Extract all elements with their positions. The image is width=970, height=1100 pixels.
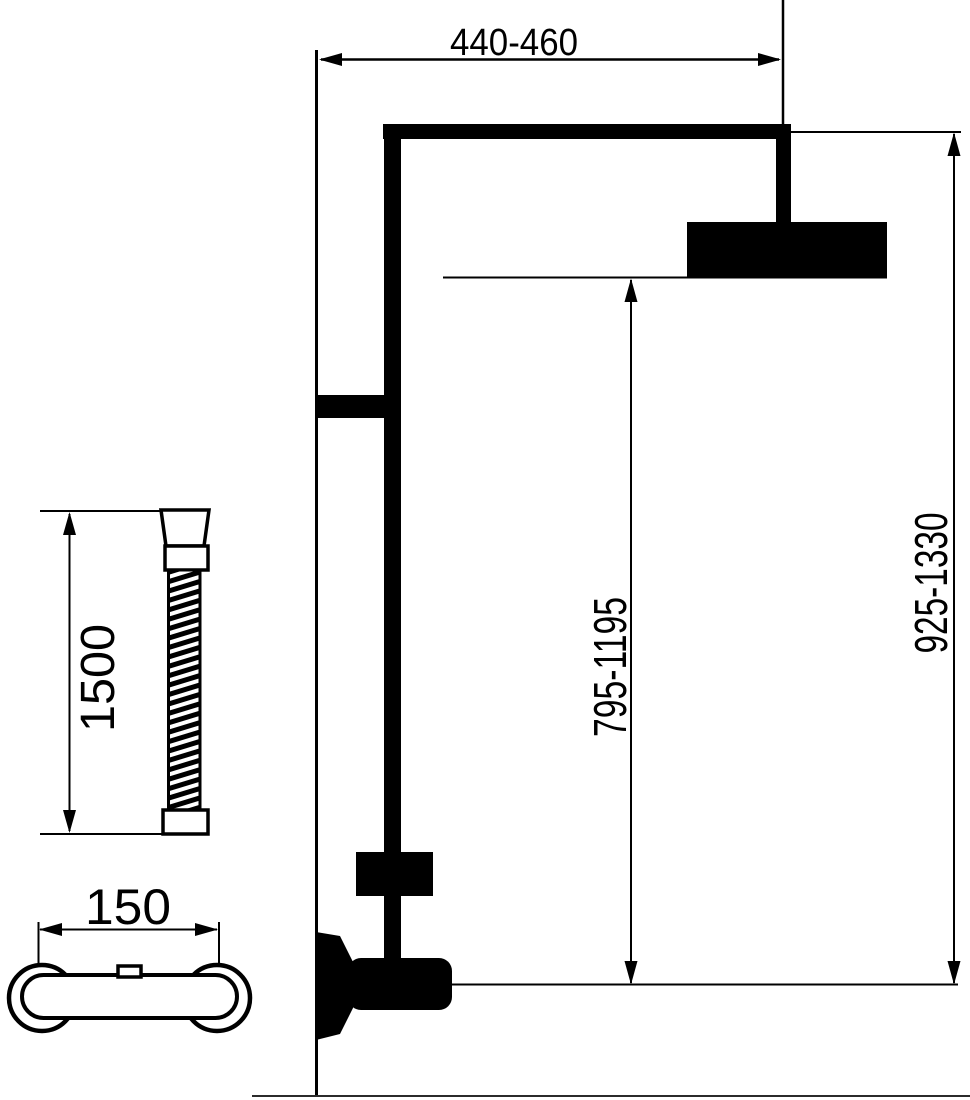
- top-arm-pipe: [383, 124, 791, 139]
- mixer-wall-flange: [316, 932, 353, 1040]
- arrowhead-down-icon: [948, 961, 961, 985]
- arrowhead-down-icon: [625, 961, 638, 985]
- arrowhead-up-icon: [948, 133, 961, 157]
- arrowhead-left-icon: [319, 53, 342, 66]
- mixer-body-side: [348, 958, 452, 1010]
- arrowhead-up-icon: [625, 279, 638, 303]
- arrowhead-right-icon: [758, 53, 781, 66]
- dimension-mid-height: 795-1195: [584, 279, 638, 985]
- mixer-front-view: 150: [9, 879, 250, 1031]
- hose-bottom-nut: [163, 810, 208, 834]
- mixer-body-front: [22, 975, 237, 1018]
- arrowhead-up-icon: [63, 512, 76, 535]
- dimension-mixer-width: 150: [39, 879, 220, 970]
- shower-hose-view: 1500: [40, 510, 209, 834]
- hose-top-nut: [165, 546, 208, 570]
- riser-pipe: [384, 124, 401, 962]
- dimension-hose-length: 1500: [40, 511, 162, 834]
- head-drop-pipe: [776, 139, 791, 223]
- upper-wall-bracket: [316, 395, 401, 418]
- arrowhead-left-icon: [39, 923, 62, 936]
- arrowhead-right-icon: [195, 923, 218, 936]
- dimension-label-hose-length: 1500: [72, 624, 125, 732]
- slider-block: [356, 852, 433, 896]
- dimension-label-mixer-width: 150: [85, 879, 171, 935]
- dimension-label-right-height: 925-1330: [905, 513, 957, 654]
- main-elevation-view: 440-460 795-1195: [252, 0, 970, 1096]
- overhead-shower-head: [687, 222, 887, 278]
- mixer-diverter-tab: [118, 966, 141, 977]
- dimension-label-mid-height: 795-1195: [584, 597, 636, 737]
- hose-corrugated-tube: [169, 570, 201, 810]
- arrowhead-down-icon: [63, 810, 76, 833]
- technical-drawing-page: 440-460 795-1195: [0, 0, 970, 1100]
- dimension-top-width: 440-460: [319, 0, 783, 124]
- shower-column-dimensional-drawing: 440-460 795-1195: [0, 0, 970, 1100]
- dimension-label-top-width: 440-460: [450, 22, 578, 64]
- hose-conical-end: [161, 510, 209, 546]
